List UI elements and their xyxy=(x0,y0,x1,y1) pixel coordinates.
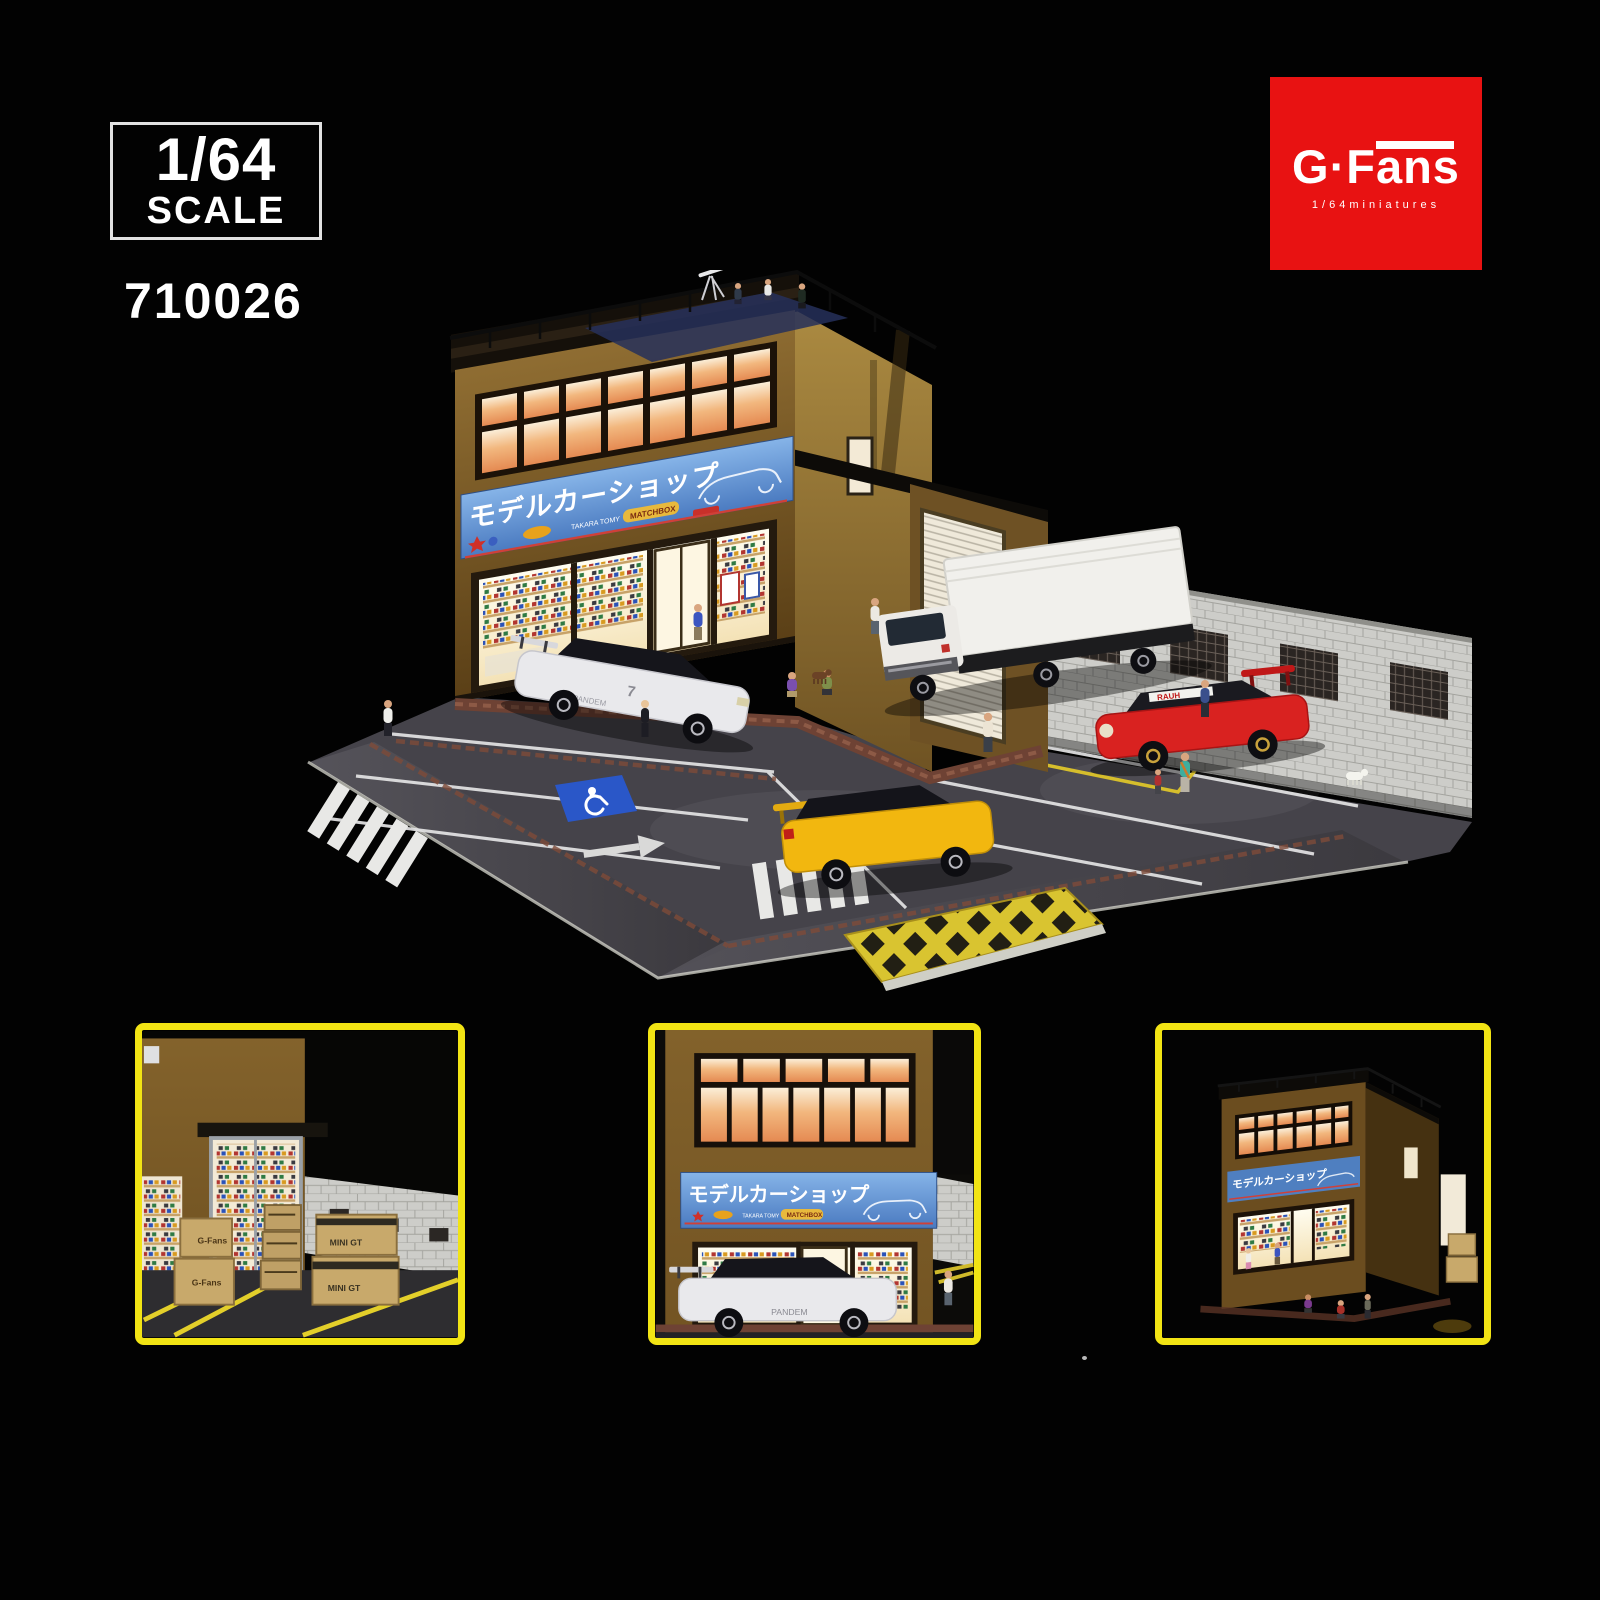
product-image: 1/64 SCALE 710026 G·Fans 1/64miniatures … xyxy=(0,0,1600,1600)
scale-value: 1/64 xyxy=(113,129,319,191)
t2-window-band xyxy=(694,1053,915,1147)
truck-logo xyxy=(941,644,950,653)
t2-brand2: MATCHBOX xyxy=(787,1212,823,1219)
figure-woman-black xyxy=(641,700,649,737)
figure-white-shirt xyxy=(871,598,880,634)
gfans-logo: G·Fans 1/64miniatures xyxy=(1270,77,1482,289)
t3-front-face: モデルカーショップ xyxy=(1219,1068,1369,1309)
dust-speck xyxy=(1082,1356,1087,1360)
gfans-logo-fbar xyxy=(1376,141,1454,149)
t1-boxes-gfans: G-Fans G-Fans xyxy=(175,1218,234,1304)
figure-blazer-man xyxy=(1201,680,1210,717)
thumbnail-storefront: モデルカーショップ TAKARA TOMY MATCHBOX xyxy=(648,1023,981,1345)
scale-badge: 1/64 SCALE xyxy=(110,122,322,240)
t1-awning xyxy=(198,1123,328,1137)
roof-figure xyxy=(764,279,771,300)
t1-box-label-minigt: MINI GT xyxy=(328,1283,361,1293)
gfans-logo-subtext: 1/64miniatures xyxy=(1270,199,1482,211)
t2-gtr-label: PANDEM xyxy=(771,1307,807,1317)
t1-boxes-minigt: MINI GT MINI GT xyxy=(312,1215,398,1305)
thumbnail-side-entrance: EXIT G-Fans G-Fans xyxy=(135,1023,465,1345)
scale-word: SCALE xyxy=(113,191,319,231)
poster xyxy=(721,572,739,605)
t2-figure-white xyxy=(944,1271,953,1306)
diorama-photo: モデルカーショップ TAKARA TOMY MATCHBOX xyxy=(300,270,1500,1010)
poster-2 xyxy=(745,572,759,598)
roof-figure xyxy=(734,283,741,304)
figure-teal-bag xyxy=(1180,753,1190,792)
t3-yellow-glow xyxy=(1433,1320,1471,1333)
t2-sidewalk xyxy=(656,1325,974,1333)
product-code: 710026 xyxy=(124,272,303,330)
figure-white-sweater xyxy=(983,713,993,752)
t2-tiles xyxy=(933,1176,973,1266)
t1-boxes-small xyxy=(261,1205,301,1289)
t1-box-label-minigt: MINI GT xyxy=(330,1237,363,1247)
t1-box-label: G-Fans xyxy=(192,1278,222,1288)
figure-sitting-purple xyxy=(787,672,797,697)
figure-blue-jacket xyxy=(694,604,703,640)
t3-side-face xyxy=(1366,1082,1439,1295)
evo-taillight xyxy=(783,829,794,840)
t2-brand1: TAKARA TOMY xyxy=(742,1214,779,1220)
figure-child-red xyxy=(1155,769,1162,794)
t2-sign: モデルカーショップ TAKARA TOMY MATCHBOX xyxy=(681,1172,937,1228)
t1-box-label: G-Fans xyxy=(198,1235,228,1245)
t3-side-window xyxy=(1404,1147,1417,1178)
truck-cab xyxy=(876,604,964,680)
figure-walking-man xyxy=(384,700,393,736)
t2-sign-text: モデルカーショップ xyxy=(688,1182,870,1206)
thumbnail-night-view: モデルカーショップ xyxy=(1155,1023,1491,1345)
roof-figure xyxy=(798,283,806,308)
